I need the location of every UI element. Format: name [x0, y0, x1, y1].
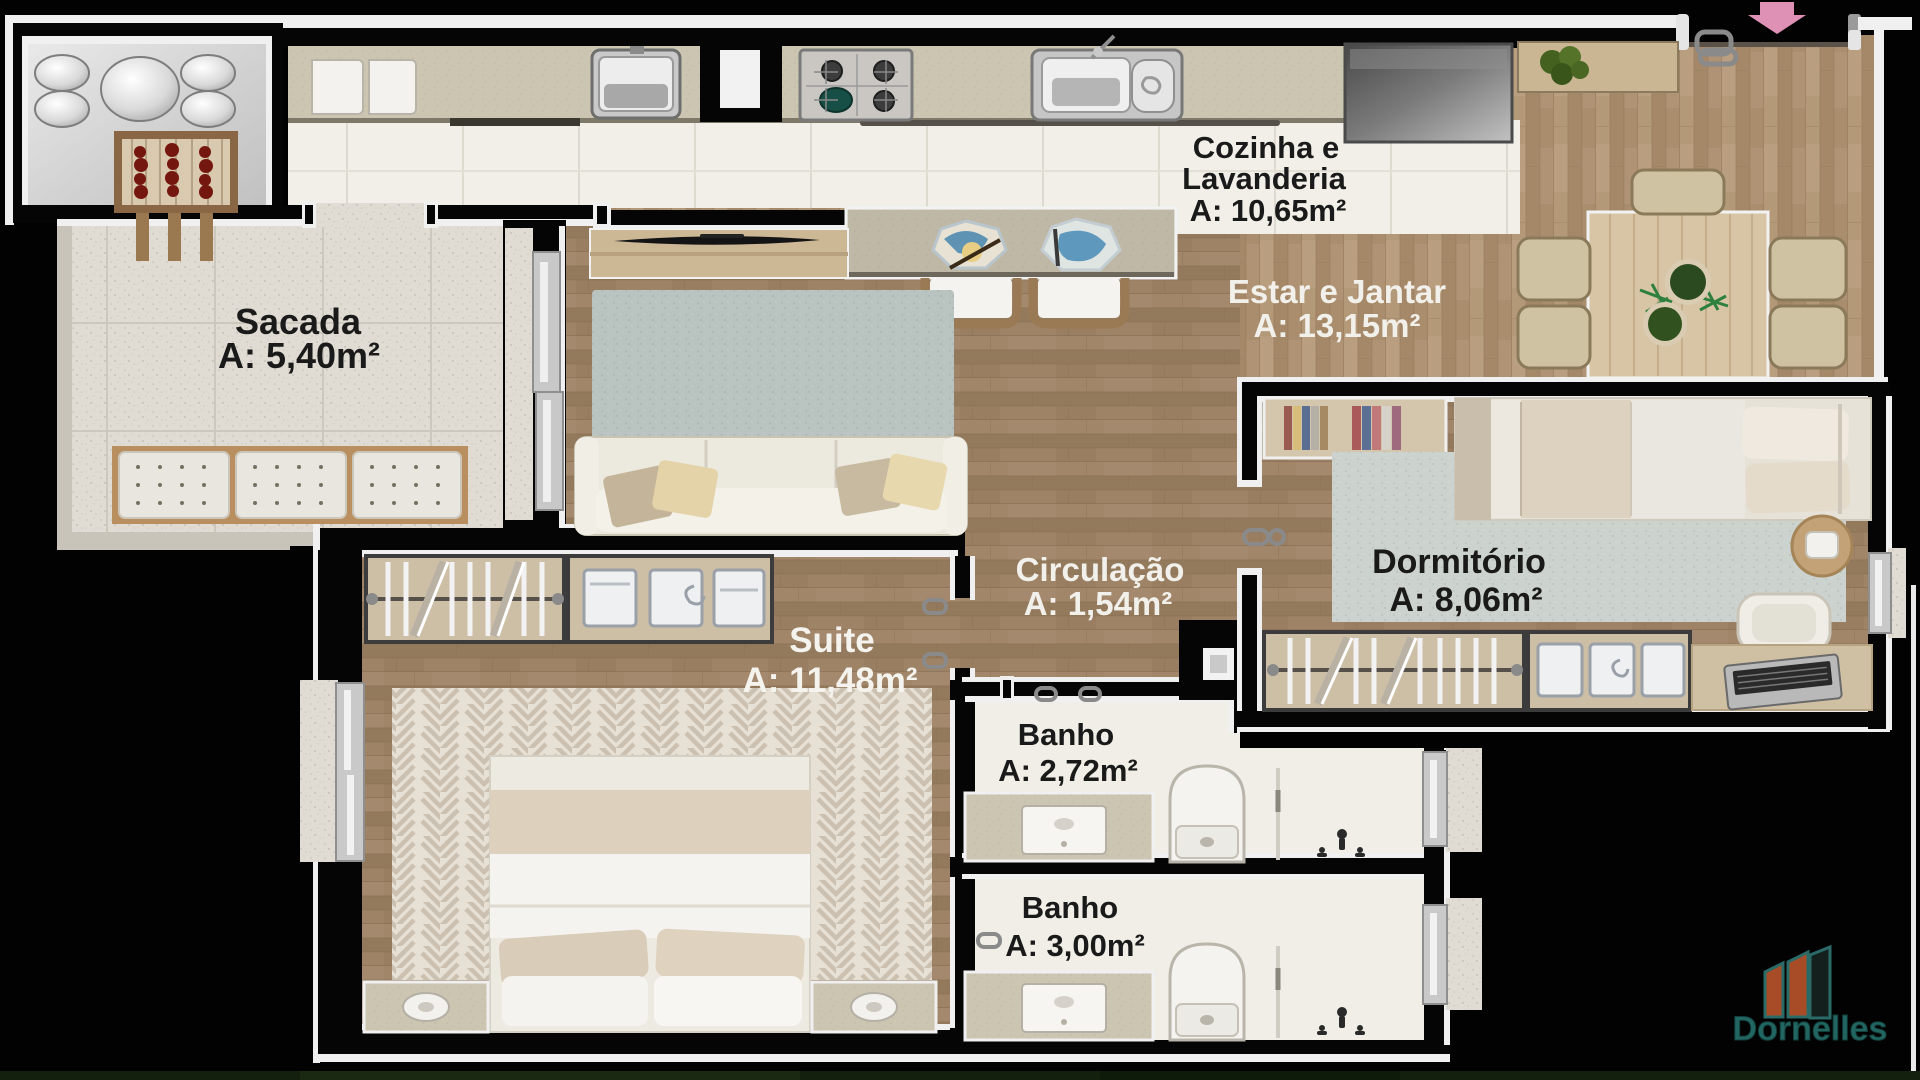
svg-text:A: 5,40m²: A: 5,40m²: [218, 335, 380, 376]
svg-text:A: 10,65m²: A: 10,65m²: [1190, 193, 1347, 228]
svg-text:Cozinha e: Cozinha e: [1193, 130, 1339, 165]
svg-text:Lavanderia: Lavanderia: [1182, 161, 1346, 196]
svg-text:Suite: Suite: [789, 621, 875, 660]
svg-text:Circulação: Circulação: [1016, 551, 1185, 588]
svg-text:A: 2,72m²: A: 2,72m²: [998, 753, 1138, 788]
svg-text:A: 1,54m²: A: 1,54m²: [1024, 585, 1173, 622]
svg-text:A: 11,48m²: A: 11,48m²: [742, 661, 917, 700]
svg-text:A: 3,00m²: A: 3,00m²: [1005, 928, 1145, 963]
svg-text:Banho: Banho: [1018, 717, 1114, 752]
svg-text:Dornelles: Dornelles: [1733, 1010, 1888, 1048]
svg-text:Estar e Jantar: Estar e Jantar: [1228, 273, 1446, 310]
svg-text:Dormitório: Dormitório: [1372, 543, 1546, 581]
svg-text:A: 13,15m²: A: 13,15m²: [1254, 307, 1421, 344]
svg-text:Banho: Banho: [1022, 890, 1118, 925]
svg-text:A: 8,06m²: A: 8,06m²: [1389, 581, 1542, 619]
